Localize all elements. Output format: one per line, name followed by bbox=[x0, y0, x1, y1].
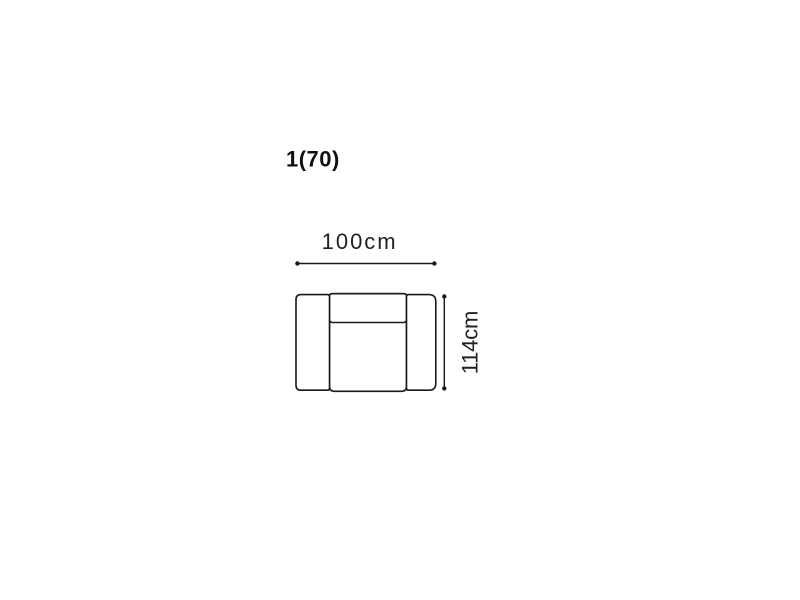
svg-text:114cm: 114cm bbox=[457, 311, 482, 374]
svg-text:1(70): 1(70) bbox=[286, 147, 340, 172]
svg-text:100cm: 100cm bbox=[322, 229, 398, 254]
